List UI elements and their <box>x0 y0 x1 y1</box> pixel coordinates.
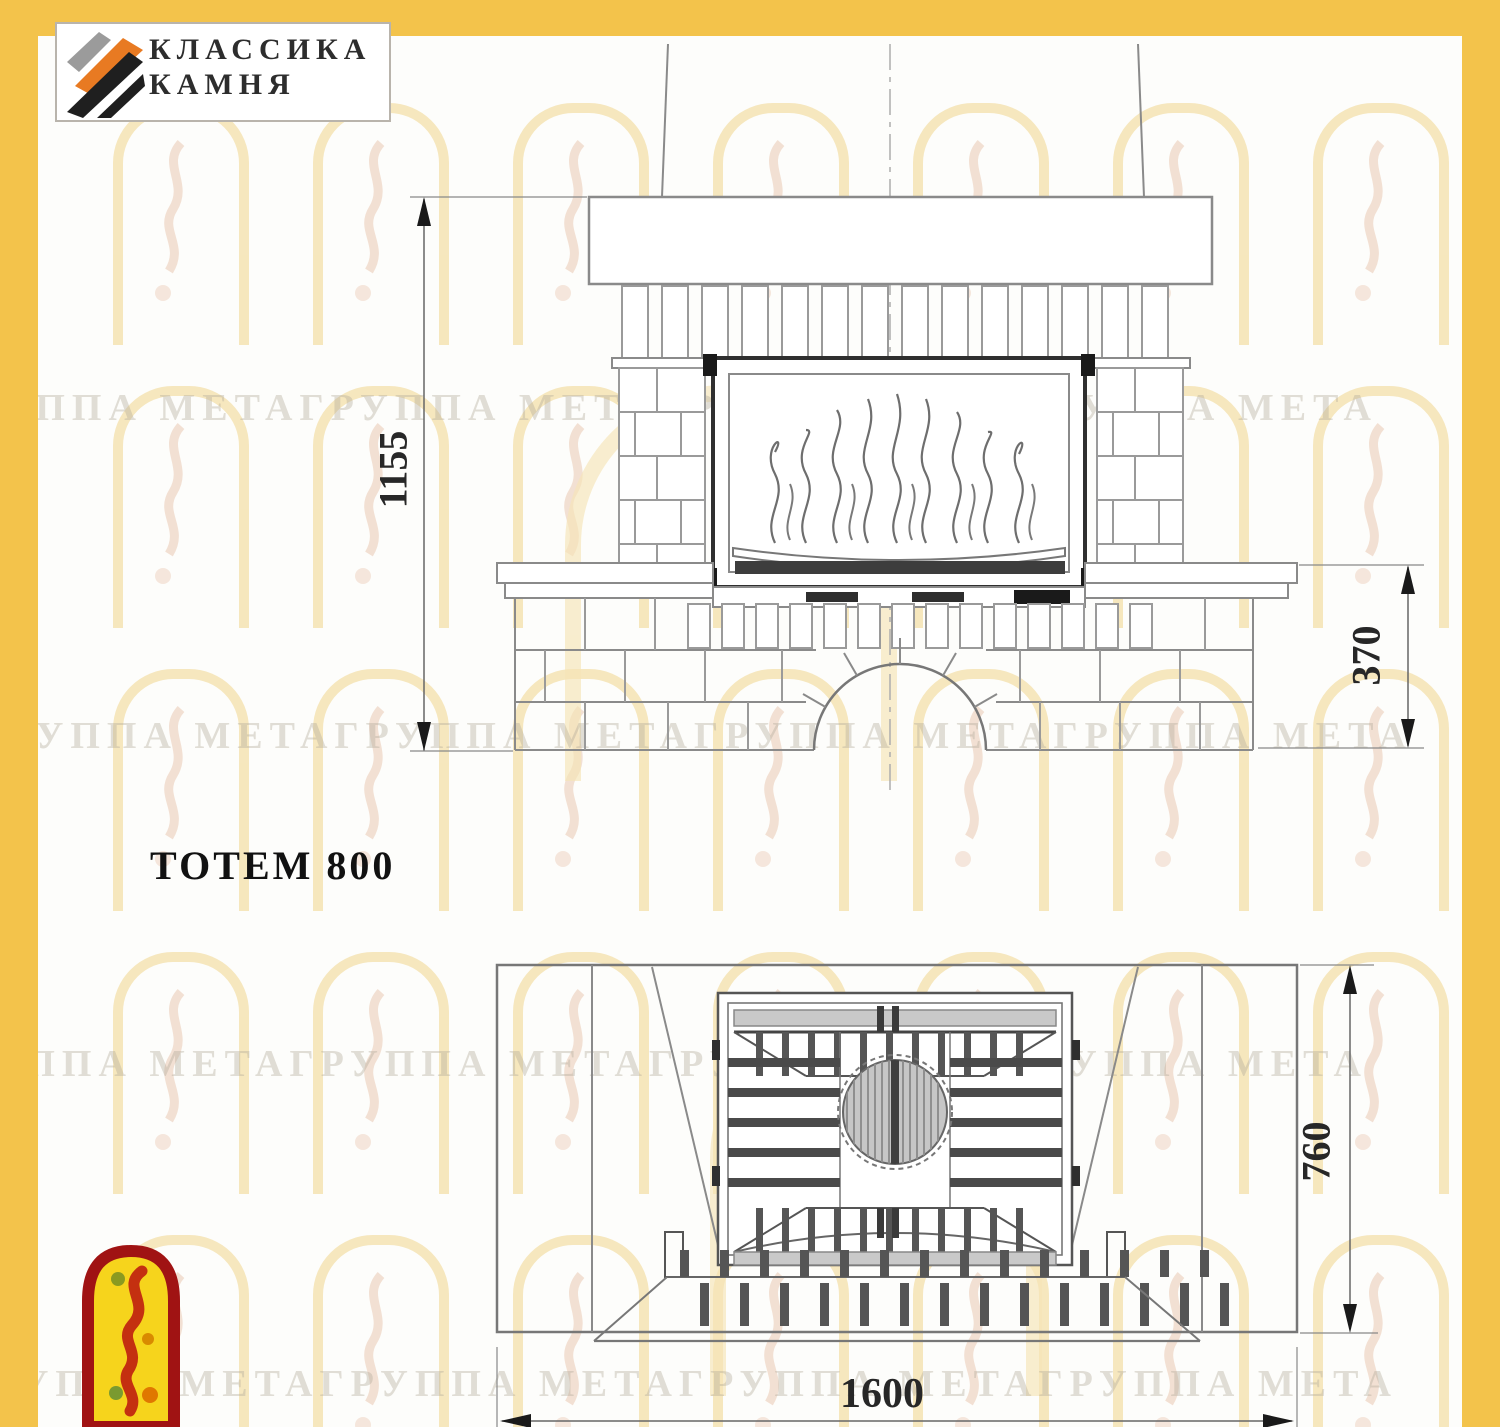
brand-logo: КЛАССИКА КАМНЯ <box>55 22 391 122</box>
brand-name-line1: КЛАССИКА <box>149 32 371 67</box>
dimension-front-height: 1155 <box>370 390 417 550</box>
page: ГРУППА МЕТАГРУППА МЕТАГРУППА МЕТАГРУППА … <box>0 0 1500 1427</box>
dimension-plan-depth: 760 <box>1293 1092 1340 1212</box>
footer-arch-logo <box>80 1243 182 1427</box>
front-view <box>410 44 1424 795</box>
technical-drawing <box>0 0 1500 1427</box>
brand-name-line2: КАМНЯ <box>149 67 371 102</box>
page-border-right <box>1462 0 1500 1427</box>
plan-view <box>497 965 1378 1427</box>
dimension-bench-height: 370 <box>1343 596 1390 716</box>
brand-stripes-icon <box>63 28 147 118</box>
dimension-plan-width: 1600 <box>792 1370 972 1418</box>
brand-name: КЛАССИКА КАМНЯ <box>149 32 371 102</box>
model-label: ТОТЕМ 800 <box>150 842 395 889</box>
page-border-left <box>0 0 38 1427</box>
